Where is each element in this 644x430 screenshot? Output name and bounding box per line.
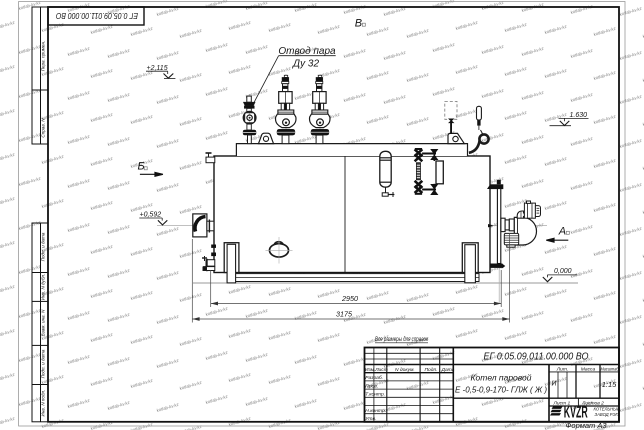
svg-text:Котел паровой: Котел паровой (471, 373, 532, 383)
svg-text:Пров.: Пров. (365, 383, 378, 389)
svg-text:Б: Б (138, 161, 145, 173)
svg-text:Перв. примен.: Перв. примен. (41, 41, 46, 72)
svg-text:ЕГ 0.05.09.011.00.000 ВО: ЕГ 0.05.09.011.00.000 ВО (56, 11, 138, 21)
svg-text:Масса: Масса (581, 366, 596, 372)
svg-text:ЕГ 0.05.09.011.00.000 ВО: ЕГ 0.05.09.011.00.000 ВО (484, 352, 589, 363)
svg-text:А: А (558, 225, 566, 237)
svg-text:ЗАВОД РЭП: ЗАВОД РЭП (595, 412, 620, 417)
svg-text:Н.контр.: Н.контр. (365, 408, 386, 414)
svg-text:Лист: Лист (374, 367, 388, 373)
svg-text:1.630: 1.630 (570, 112, 588, 119)
svg-text:1:15: 1:15 (602, 380, 617, 389)
svg-text:0,000: 0,000 (554, 268, 572, 275)
svg-text:N докум.: N докум. (395, 367, 415, 373)
svg-text:2950: 2950 (341, 294, 358, 303)
svg-text:Е -0,5-0,9-170- ГЛЖ ( Ж ): Е -0,5-0,9-170- ГЛЖ ( Ж ) (455, 386, 547, 395)
svg-text:Подп. и дата: Подп. и дата (41, 232, 46, 261)
svg-text:Подп. и дата: Подп. и дата (41, 349, 46, 378)
svg-text:+0,592: +0,592 (140, 212, 162, 219)
svg-text:Инв. N подл.: Инв. N подл. (41, 390, 46, 417)
svg-text:KVZR: KVZR (564, 403, 588, 421)
svg-text:Подп.: Подп. (425, 367, 438, 373)
svg-text:Ду 32: Ду 32 (292, 59, 319, 70)
svg-text:Лит.: Лит. (556, 366, 568, 372)
svg-text:Взам. инв. N: Взам. инв. N (41, 309, 46, 336)
svg-text:3175: 3175 (336, 310, 353, 319)
svg-text:Изм.: Изм. (365, 367, 375, 373)
svg-text:В: В (355, 18, 362, 30)
svg-text:Утв.: Утв. (365, 416, 376, 422)
svg-text:Масштаб: Масштаб (601, 366, 619, 372)
svg-text:Формат А3: Формат А3 (565, 421, 607, 430)
svg-text:Разраб.: Разраб. (365, 375, 383, 381)
svg-text:Дата: Дата (441, 367, 455, 373)
svg-text:Инв. N дубл.: Инв. N дубл. (41, 274, 46, 301)
svg-text:Справ. N: Справ. N (41, 118, 46, 138)
svg-text:Все размеры для справок: Все размеры для справок (375, 335, 429, 343)
svg-text:КОТЕЛЬНЫЙ: КОТЕЛЬНЫЙ (594, 407, 620, 412)
svg-text:Т.контр.: Т.контр. (365, 392, 385, 398)
